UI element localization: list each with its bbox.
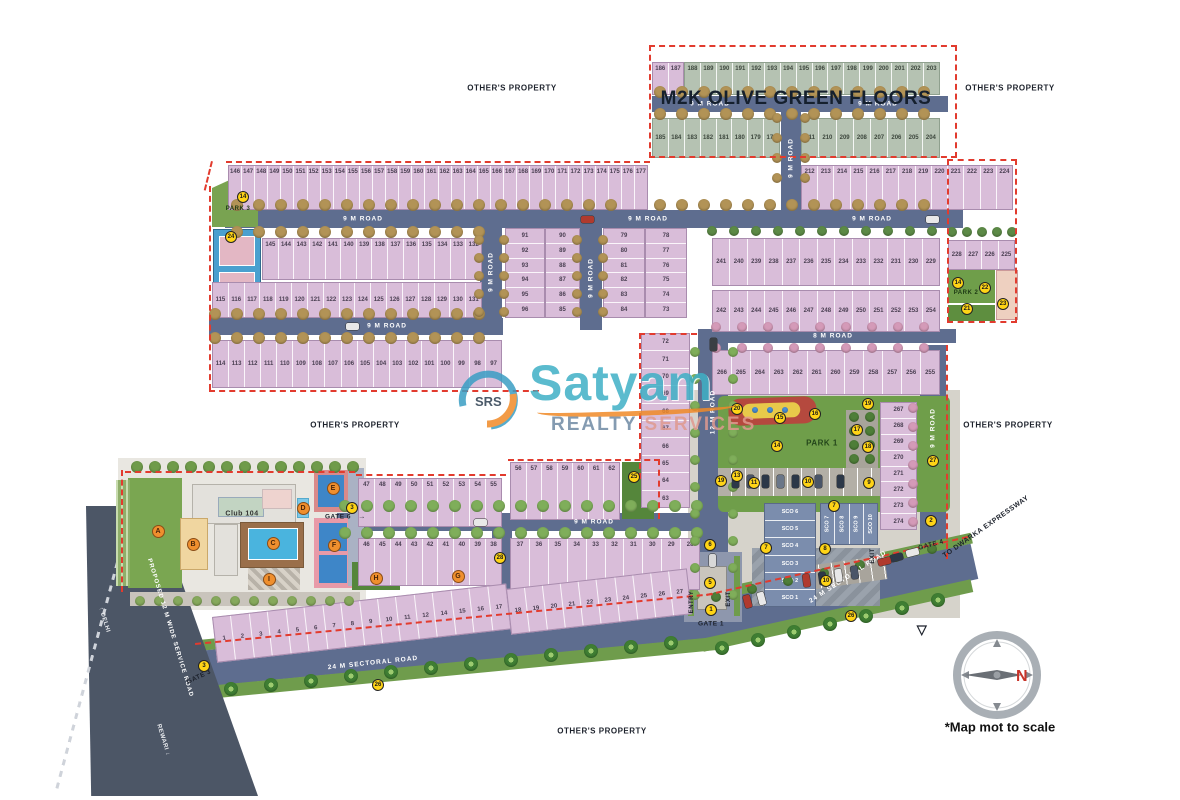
tree-icon [737,343,747,353]
tree-icon [918,199,930,211]
plot-number: 169 [531,169,541,175]
plot-number: 105 [360,361,370,367]
plot-number: 110 [280,361,290,367]
map-label: EXIT [726,591,732,606]
plot: 96 [506,302,544,317]
plot: 235 [817,239,834,285]
plot-number: 108 [312,361,322,367]
plot-number: 48 [379,482,386,488]
plot-number: 41 [443,542,450,548]
tree-icon [297,199,309,211]
plot-number: 40 [458,542,465,548]
tree-icon [896,199,908,211]
plot-number: 233 [856,259,866,265]
plots-114-97: 1141131121111101091081071061051041031021… [212,340,502,388]
plot: 68 [642,403,689,420]
plot-number: 62 [608,466,615,472]
plot: 261 [807,351,826,394]
plot-number: SCO 10 [867,514,873,534]
tree-icon [742,199,754,211]
map-label: EXIT [870,548,876,563]
plot-number: 254 [926,308,936,314]
plot: 220 [931,166,947,209]
tree-icon [268,596,278,606]
plot-number: 112 [248,361,258,367]
plot-number: 148 [256,169,266,175]
plot: 139 [356,239,372,279]
plot: 177 [634,166,647,209]
tree-icon [173,596,183,606]
tree-icon [800,173,810,183]
road-label: 8 M ROAD [813,333,853,340]
plot-number: 116 [231,297,241,303]
sco-row-a: SCO 6SCO 5SCO 4SCO 3SCO 2SCO 1 [764,503,816,607]
plot-number: 79 [621,233,628,239]
plot-number: 236 [804,259,814,265]
plot-number: 144 [281,242,291,248]
plot-number: 176 [623,169,633,175]
tree-icon [728,428,738,438]
plot: 230 [904,239,921,285]
tree-icon [654,199,666,211]
plot: SCO 1 [765,589,815,606]
plot-number: 251 [873,308,883,314]
tree-icon [598,253,608,263]
plot: 237 [782,239,799,285]
tree-icon [427,527,439,539]
tree-icon [927,226,937,236]
badge-2: 2 [925,515,937,527]
boundary-dash [356,474,506,476]
tree-icon [690,509,700,519]
plot-number: 30 [649,542,656,548]
plot: 114 [213,341,228,387]
letter-badge-I: I [263,573,276,586]
tree-icon [363,226,375,238]
plot-number: 160 [413,169,423,175]
plot-number: 166 [492,169,502,175]
plot-number: 266 [717,370,727,376]
badge-10: 10 [820,575,832,587]
plot: 91 [506,229,544,243]
map-label: ▽ [917,622,928,638]
plot-number: 11 [404,615,411,622]
plot: 102 [405,341,421,387]
tree-icon [493,500,505,512]
plot-number: 103 [392,361,402,367]
plot: 70 [642,368,689,385]
plot-number: 133 [453,242,463,248]
plot-number: 65 [662,461,669,467]
plot-number: 265 [736,370,746,376]
tree-icon [253,332,265,344]
tree-icon [539,199,551,211]
car-icon [815,475,822,488]
plot: 108 [308,341,324,387]
plot-number: 235 [821,259,831,265]
badge-22: 22 [979,282,991,294]
plot-number: 33 [592,542,599,548]
car-icon [581,216,594,223]
tree-icon [471,527,483,539]
plot-number: SCO 1 [782,595,799,601]
car-icon [777,475,784,488]
tree-icon [499,307,509,317]
tree-icon [344,596,354,606]
tree-icon [253,308,265,320]
road-label: 9 M ROAD [367,323,407,330]
plot-number: 109 [296,361,306,367]
badge-18: 18 [862,441,874,453]
tree-icon [728,374,738,384]
map-label: GATE 6 [325,514,351,521]
plot-number: 8 [350,621,354,627]
tree-icon [839,226,849,236]
plot-number: SCO 7 [825,516,831,533]
tree-icon [135,596,145,606]
plot-number: 123 [342,297,352,303]
tree-icon [407,308,419,320]
tree-icon [598,271,608,281]
plot-number: 12 [422,612,429,619]
plot-number: 262 [793,370,803,376]
map-label: PARK 2 [954,290,979,296]
plot: 244 [747,291,764,331]
tree-icon [471,500,483,512]
plot-number: 107 [328,361,338,367]
plot-number: 55 [490,482,497,488]
tree-icon [865,412,875,422]
tree-icon [763,322,773,332]
plot-number: 9 [369,619,373,625]
plot-number: 80 [621,248,628,254]
tree-icon [495,199,507,211]
tree-icon [499,271,509,281]
tree-icon [908,517,918,527]
plot-number: 47 [363,482,370,488]
plot: SCO 4 [765,537,815,554]
plot: SCO 10 [863,504,877,544]
plot: 135 [418,239,434,279]
tree-icon [427,500,439,512]
tree-icon [515,500,527,512]
tree-icon [908,441,918,451]
plot: 67 [642,420,689,437]
plot-number: 101 [424,361,434,367]
plot: 133 [450,239,466,279]
court-24-a [219,236,255,266]
badge-6: 6 [704,539,716,551]
tree-icon [361,500,373,512]
road-label: 9 M ROAD [788,138,795,178]
map-label: PARK 1 [806,439,838,448]
plot-number: SCO 3 [782,561,799,567]
plot: 140 [340,239,356,279]
car-icon [792,475,799,488]
plot-number: 87 [559,277,566,283]
plot-number: 121 [310,297,320,303]
tree-icon [603,527,615,539]
badge-28: 28 [494,552,506,564]
plot-number: 84 [621,307,628,313]
plot-number: 34 [573,542,580,548]
tree-icon [363,199,375,211]
plot-number: 170 [544,169,554,175]
plot-number: 56 [515,466,522,472]
plot: 138 [371,239,387,279]
tree-icon [583,199,595,211]
letter-badge-F: F [328,539,341,552]
plot: 39 [469,539,485,585]
plot: 84 [604,302,644,317]
plot-number: 126 [390,297,400,303]
letter-badge-A: A [152,525,165,538]
tree-icon [306,596,316,606]
plot-number: 149 [269,169,279,175]
plot: 75 [646,272,686,287]
plot-number: 53 [458,482,465,488]
tree-icon [363,308,375,320]
plot: 231 [887,239,904,285]
plot-number: 31 [630,542,637,548]
tree-icon [253,226,265,238]
boundary-dash [121,470,123,592]
boundary-dash [125,471,355,473]
plot: 106 [341,341,357,387]
plot-number: 152 [309,169,319,175]
plot-number: 140 [344,242,354,248]
badge-17: 17 [851,424,863,436]
tree-icon [429,332,441,344]
plot: 65 [642,455,689,472]
badge-13: 13 [731,470,743,482]
tree-icon [363,332,375,344]
tree-icon [841,343,851,353]
map-label: GATE 1 [698,621,724,628]
tree-icon [728,536,738,546]
plot-number: 63 [662,496,669,502]
tree-icon [795,226,805,236]
plot-number: 86 [559,292,566,298]
badge-24: 24 [225,231,237,243]
plot-number: 267 [893,407,903,413]
tree-icon [424,661,438,675]
plot: 255 [920,351,939,394]
tree-icon [895,601,909,615]
badge-7: 7 [828,500,840,512]
plot-number: 58 [546,466,553,472]
tree-icon [815,322,825,332]
plot-number: 54 [474,482,481,488]
plot: 97 [485,341,501,387]
tree-icon [287,596,297,606]
tree-icon [341,332,353,344]
tree-icon [669,527,681,539]
tree-icon [647,527,659,539]
plot: 233 [852,239,869,285]
tree-icon [625,500,637,512]
badge-21: 21 [961,303,973,315]
tree-icon [690,428,700,438]
plot-number: 120 [295,297,305,303]
plot-number: 95 [522,292,529,298]
tree-icon [504,653,518,667]
plot: 110 [276,341,292,387]
plot-number: 135 [422,242,432,248]
badge-15: 15 [774,412,786,424]
tree-icon [429,199,441,211]
plots-145-132: 1451441431421411401391381371361351341331… [262,238,482,280]
plot: 256 [901,351,920,394]
plots-266-255: 266265264263262261260259258257256255 [712,350,940,395]
tree-icon [786,199,798,211]
tree-icon [867,322,877,332]
plot-number: 234 [839,259,849,265]
car-icon [710,338,717,351]
car-icon [346,323,359,330]
plot-number: 269 [893,439,903,445]
tree-icon [715,641,729,655]
tree-icon [517,199,529,211]
plot-number: 136 [406,242,416,248]
plot-number: 36 [536,542,543,548]
plot: 111 [260,341,276,387]
plot-number: 217 [886,169,896,175]
plot: 92 [506,243,544,258]
plot: 37 [511,539,529,589]
plot-number: 118 [263,297,273,303]
tree-icon [474,235,484,245]
tree-icon [908,479,918,489]
plot-number: 38 [490,542,497,548]
tree-icon [407,332,419,344]
tree-icon [451,226,463,238]
plot-number: 264 [755,370,765,376]
plot-number: 122 [326,297,336,303]
plot: 107 [324,341,340,387]
plot-number: 35 [554,542,561,548]
plot-number: 162 [440,169,450,175]
tree-icon [908,403,918,413]
tree-icon [817,226,827,236]
plot: 76 [646,258,686,273]
plot: 64 [642,472,689,489]
tree-icon [319,199,331,211]
plot-number: 215 [853,169,863,175]
tree-icon [690,536,700,546]
car-icon [926,216,939,223]
tree-icon [405,500,417,512]
tree-icon [473,332,485,344]
plot: SCO 3 [765,555,815,572]
letter-badge-E: E [327,482,340,495]
boundary-dash [226,161,650,163]
club-hedges [116,480,130,586]
boundary-dash [639,333,641,479]
road-label: 9 M ROAD [588,258,595,298]
plot-number: 156 [361,169,371,175]
plot-number: 16 [477,606,484,613]
badge-5: 5 [704,577,716,589]
badge-16: 16 [809,408,821,420]
plot-number: 96 [522,307,529,313]
badge-9: 9 [863,477,875,489]
plot-number: 247 [804,308,814,314]
tree-icon [728,563,738,573]
plot-number: 127 [405,297,415,303]
plot: 232 [869,239,886,285]
plot-number: 75 [663,277,670,283]
tree-icon [867,343,877,353]
tree-icon [319,308,331,320]
road-label: 9 M ROAD [852,216,892,223]
tree-icon [499,253,509,263]
plot-number: 272 [893,487,903,493]
plot-number: 172 [570,169,580,175]
plot-number: 258 [868,370,878,376]
tree-icon [451,199,463,211]
plot-number: 89 [559,248,566,254]
court-f2 [319,555,347,583]
badge-20: 20 [731,403,743,415]
plot-number: SCO 9 [853,516,859,533]
tree-icon [325,596,335,606]
tree-icon [874,199,886,211]
car-icon [837,475,844,488]
boundary-dash [946,345,948,559]
plot-number: 45 [379,542,386,548]
plot: 94 [506,272,544,287]
plot: 105 [357,341,373,387]
srs-text: SRS [475,394,502,409]
plot-number: 43 [411,542,418,548]
plot-number: 64 [662,478,669,484]
plot-number: 232 [873,259,883,265]
tree-icon [297,332,309,344]
plot-number: 128 [421,297,431,303]
plot-number: 146 [230,169,240,175]
tree-icon [319,226,331,238]
plot-number: 91 [522,233,529,239]
plot-number: 261 [812,370,822,376]
plot: 100 [437,341,453,387]
plot: 99 [453,341,469,387]
plot-number: 124 [358,297,368,303]
tree-icon [473,199,485,211]
tree-icon [559,500,571,512]
plot-number: 150 [282,169,292,175]
compass-north-label: N [1016,668,1028,685]
map-label: ENTRY [689,591,695,614]
tree-icon [764,199,776,211]
plot-number: 90 [559,233,566,239]
boundary-dash [639,333,697,335]
plot: 66 [642,437,689,454]
plot-number: 268 [893,423,903,429]
plot-number: 125 [374,297,384,303]
tree-icon [772,173,782,183]
plot-number: 27 [676,589,683,596]
plot-number: 219 [918,169,928,175]
tree-icon [690,482,700,492]
car-icon [802,573,811,587]
tree-icon [581,527,593,539]
tree-icon [499,289,509,299]
tree-icon [383,500,395,512]
plot-number: 244 [751,308,761,314]
road-label: 12 M ROAD [710,390,717,434]
tree-icon [493,527,505,539]
